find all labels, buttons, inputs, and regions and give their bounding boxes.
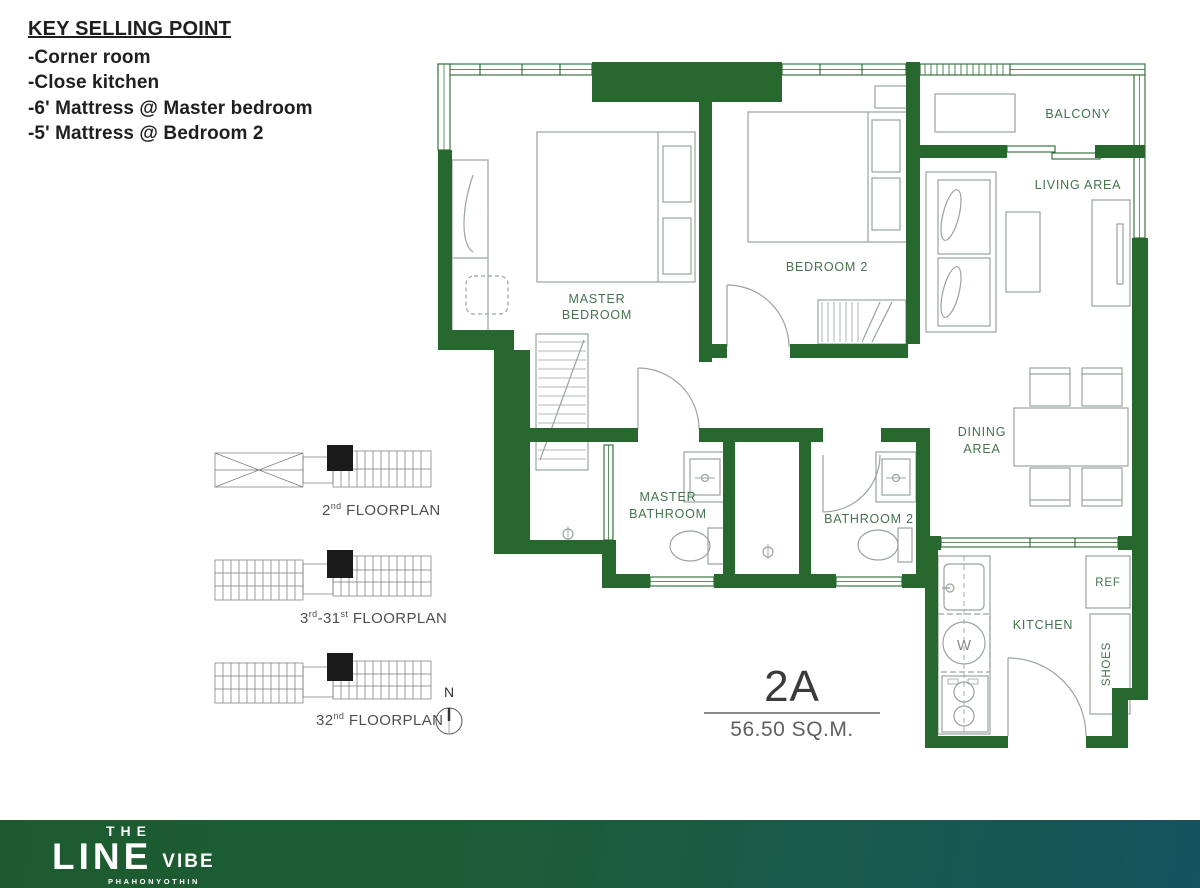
window	[650, 577, 714, 586]
label-kitchen: KITCHEN	[1013, 618, 1073, 632]
wall	[592, 62, 782, 102]
label-master-bathroom: BATHROOM	[629, 507, 707, 521]
room-labels: MASTER BEDROOM BEDROOM 2 BALCONY LIVING …	[562, 107, 1121, 686]
label-master-bathroom: MASTER	[640, 490, 697, 504]
door-arc	[1008, 658, 1086, 736]
wall	[906, 62, 920, 344]
stool	[466, 276, 508, 314]
toilet-tank	[898, 528, 912, 562]
floorplan-thumbnail-3rd-31st	[213, 548, 435, 606]
unit-divider	[704, 712, 880, 714]
floorplan-label-3: 32nd FLOORPLAN	[316, 712, 443, 729]
window	[941, 538, 1118, 547]
key-selling-points-title: KEY SELLING POINT	[28, 18, 313, 41]
wall	[438, 150, 452, 342]
tv	[1117, 224, 1123, 284]
wall	[494, 540, 616, 554]
label-dining-area: DINING	[958, 425, 1007, 439]
brand-bar: THE LINE VIBE PHAHONYOTHIN	[0, 820, 1200, 888]
sliding-door	[1007, 146, 1100, 159]
highlighted-unit	[327, 550, 353, 578]
pillow	[872, 120, 900, 172]
ac-unit	[935, 94, 1015, 132]
wall	[1095, 145, 1145, 158]
selling-point-item: -Close kitchen	[28, 70, 313, 95]
pillow	[872, 178, 900, 230]
label-washer: W	[957, 637, 972, 654]
wall	[916, 428, 930, 588]
wall	[602, 540, 616, 588]
window	[438, 64, 592, 75]
key-selling-points: KEY SELLING POINT -Corner room -Close ki…	[28, 18, 313, 147]
wall	[494, 350, 530, 554]
compass-north-label: N	[444, 684, 454, 700]
bathroom2-fixtures	[763, 452, 916, 562]
floorplan-label-1: 2nd FLOORPLAN	[322, 502, 441, 519]
stove	[942, 676, 988, 732]
furniture-layer	[452, 86, 1130, 736]
north-compass: N	[434, 684, 464, 742]
floorplan-label-2: 3rd-31st FLOORPLAN	[300, 610, 447, 627]
wall	[699, 428, 823, 442]
wall	[1086, 736, 1118, 748]
shower-glass	[604, 445, 613, 540]
bed	[537, 132, 695, 282]
wall	[712, 344, 727, 358]
coffee-table	[1006, 212, 1040, 292]
label-bedroom2: BEDROOM 2	[786, 260, 868, 274]
label-master-bedroom: MASTER	[569, 292, 626, 306]
label-living-area: LIVING AREA	[1035, 178, 1122, 192]
highlighted-unit	[327, 653, 353, 681]
wardrobe	[536, 334, 588, 470]
window	[1010, 64, 1145, 75]
tv-cabinet	[1092, 200, 1130, 306]
wall	[438, 330, 514, 350]
label-balcony: BALCONY	[1045, 107, 1110, 121]
label-dining-area: AREA	[963, 442, 1000, 456]
dining-furniture	[1014, 368, 1128, 506]
nightstand	[875, 86, 908, 108]
window	[438, 64, 450, 150]
unit-label: 2A 56.50 SQ.M.	[698, 664, 886, 742]
dining-table	[1014, 408, 1128, 466]
label-master-bedroom: BEDROOM	[562, 308, 632, 322]
window	[782, 64, 906, 75]
logo-vibe: VIBE	[162, 852, 214, 871]
wall	[723, 442, 735, 588]
mirror	[464, 175, 473, 252]
highlighted-unit	[327, 445, 353, 471]
the-line-vibe-logo: THE LINE VIBE PHAHONYOTHIN	[52, 824, 215, 886]
wall	[1118, 536, 1148, 550]
bedroom2-furniture	[727, 86, 908, 347]
logo-subtitle: PHAHONYOTHIN	[108, 877, 215, 886]
page: { "key_selling_points": { "title": "KEY …	[0, 0, 1200, 888]
pillow	[663, 146, 691, 202]
unit-floor-plan: MASTER BEDROOM BEDROOM 2 BALCONY LIVING …	[425, 55, 1150, 755]
wall	[714, 574, 836, 588]
floorplan-thumbnail-2nd	[213, 443, 435, 495]
toilet	[670, 531, 710, 561]
label-bathroom2: BATHROOM 2	[824, 512, 914, 526]
balcony-railing	[920, 64, 1010, 75]
pillow	[663, 218, 691, 274]
wall	[528, 428, 638, 442]
window	[836, 577, 902, 586]
door-arc	[727, 285, 789, 347]
living-furniture	[926, 172, 1130, 332]
cushion	[937, 265, 965, 319]
wall	[799, 442, 811, 588]
logo-line: LINE	[52, 838, 152, 875]
unit-area: 56.50 SQ.M.	[698, 718, 886, 742]
wall	[920, 145, 1007, 158]
label-ref: REF	[1095, 577, 1120, 589]
bed	[748, 112, 908, 242]
selling-point-item: -5' Mattress @ Bedroom 2	[28, 121, 313, 146]
door-arc	[823, 455, 880, 512]
cushion	[937, 188, 965, 242]
wall	[699, 62, 712, 362]
windows-layer	[438, 64, 1145, 586]
wall	[790, 344, 908, 358]
wall	[1132, 238, 1148, 696]
toilet	[858, 530, 898, 560]
selling-point-item: -Corner room	[28, 45, 313, 70]
selling-point-item: -6' Mattress @ Master bedroom	[28, 96, 313, 121]
wall	[902, 574, 930, 588]
label-shoes: SHOES	[1101, 642, 1113, 686]
bookshelf	[818, 300, 906, 344]
floorplan-thumbnail-32nd	[213, 651, 435, 709]
door-arc	[638, 368, 699, 429]
unit-name: 2A	[698, 664, 886, 710]
